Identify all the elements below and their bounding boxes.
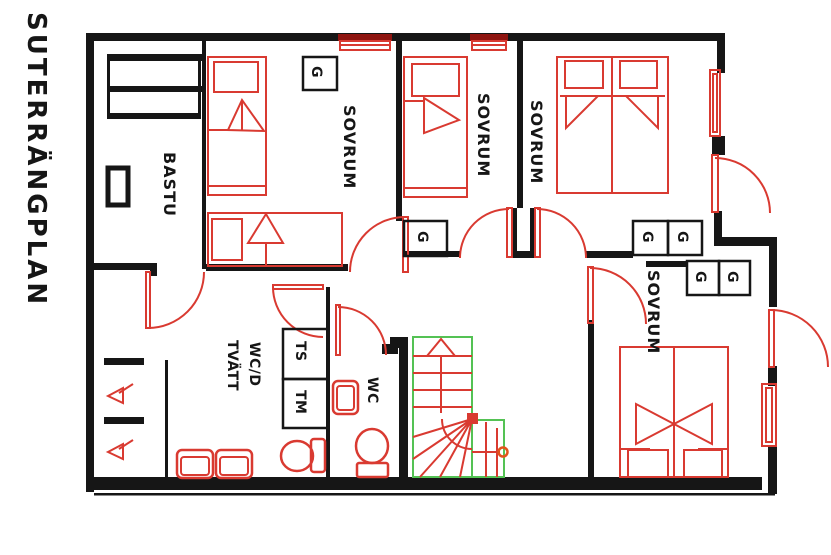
- room-label-sovrum-3: SOVRUM: [527, 100, 546, 184]
- floor-plan-page: SUTERRÄNGPLAN BASTU SOVRUM SOVRUM SOVRUM…: [0, 0, 831, 555]
- wall-strip-partition: [165, 360, 168, 478]
- toilet-wc: [356, 429, 388, 477]
- wall-stairs-west: [399, 337, 408, 478]
- wardrobe-label-4a: G: [692, 271, 708, 283]
- interior-walls: [93, 41, 687, 485]
- wall-bed2-bed3-divider: [517, 41, 523, 208]
- wall-strip-stub-1: [104, 358, 144, 365]
- wall-divider-chase-left: [513, 208, 517, 258]
- wardrobe-label-3b: G: [674, 231, 690, 243]
- label-drying-cabinet: TS: [292, 341, 308, 362]
- bed-sovrum2: [404, 57, 467, 197]
- floor-plan-drawing: SUTERRÄNGPLAN BASTU SOVRUM SOVRUM SOVRUM…: [0, 0, 831, 555]
- stair-winder-rays: [413, 419, 472, 477]
- wall-right-stub: [712, 136, 725, 155]
- room-label-bastu: BASTU: [160, 152, 179, 217]
- room-label-laundry-line1: WC/D: [246, 342, 262, 386]
- label-washing-machine: TM: [292, 390, 308, 414]
- door-sovrum-4: [588, 267, 646, 324]
- door-sovrum-1: [350, 217, 408, 272]
- wall-right-lower-a: [769, 237, 777, 307]
- window-top-1: [338, 34, 392, 50]
- sauna-heater: [108, 168, 128, 205]
- stair-direction-arrow: [427, 339, 455, 413]
- door-wc: [336, 305, 386, 355]
- window-right-upper: [710, 70, 720, 136]
- wall-bed4-left: [588, 320, 594, 485]
- sink-wc: [333, 381, 358, 414]
- door-sovrum-2: [460, 208, 512, 258]
- wardrobe-label-3a: G: [639, 231, 655, 243]
- drain-arrow-2: [108, 440, 133, 459]
- wall-strip-stub-2: [104, 417, 144, 424]
- door-sovrum-3: [535, 208, 586, 258]
- window-top-2: [470, 34, 508, 50]
- bed-sovrum1-vertical: [208, 57, 266, 195]
- wardrobe-label-1: G: [308, 66, 324, 78]
- foundation-line: [94, 493, 775, 496]
- door-bastu: [146, 272, 204, 328]
- wall-divider-chase-bottom: [513, 251, 534, 258]
- wall-top: [86, 33, 725, 41]
- wall-bastu-right: [202, 41, 206, 269]
- door-exterior-lower: [769, 310, 828, 367]
- wardrobe-label-4b: G: [724, 271, 740, 283]
- labels: SUTERRÄNGPLAN BASTU SOVRUM SOVRUM SOVRUM…: [21, 12, 740, 414]
- staircase: [413, 337, 508, 477]
- washer-unit-2: [216, 450, 252, 478]
- stair-treads: [413, 356, 500, 477]
- sauna-benches: [107, 54, 203, 119]
- wall-divider-chase-right: [530, 208, 534, 258]
- washer-unit-1: [177, 450, 213, 478]
- room-label-sovrum-2: SOVRUM: [474, 93, 493, 177]
- door-exterior-upper: [712, 155, 770, 213]
- window-right-lower: [762, 384, 776, 446]
- wall-bastu-bottom: [93, 263, 153, 270]
- page-title: SUTERRÄNGPLAN: [21, 12, 53, 307]
- wall-bed4-top: [646, 261, 687, 267]
- stair-newel-post: [467, 413, 478, 424]
- wall-corridor-south: [586, 251, 633, 258]
- wardrobe-label-2: G: [414, 231, 430, 243]
- wall-bed1-bed2-divider: [396, 41, 402, 221]
- wall-left: [86, 33, 94, 492]
- toilet-laundry: [281, 439, 325, 472]
- bed-sovrum3-double: [557, 57, 668, 193]
- room-label-sovrum-1: SOVRUM: [340, 105, 359, 189]
- drain-arrow-1: [108, 384, 133, 403]
- bed-sovrum1-horizontal: [208, 213, 342, 266]
- wardrobe-boxes: [303, 57, 750, 295]
- room-label-sovrum-4: SOVRUM: [644, 270, 663, 354]
- wall-right-lower-c: [768, 446, 777, 494]
- bed-sovrum4-double: [620, 347, 728, 477]
- wall-right-top-corner: [717, 33, 725, 73]
- room-label-laundry-line2: TVÄTT: [224, 340, 241, 391]
- room-label-wc: WC: [364, 377, 380, 404]
- wall-right-jog-horizontal: [714, 237, 777, 246]
- wall-bastu-door-stub: [150, 263, 157, 276]
